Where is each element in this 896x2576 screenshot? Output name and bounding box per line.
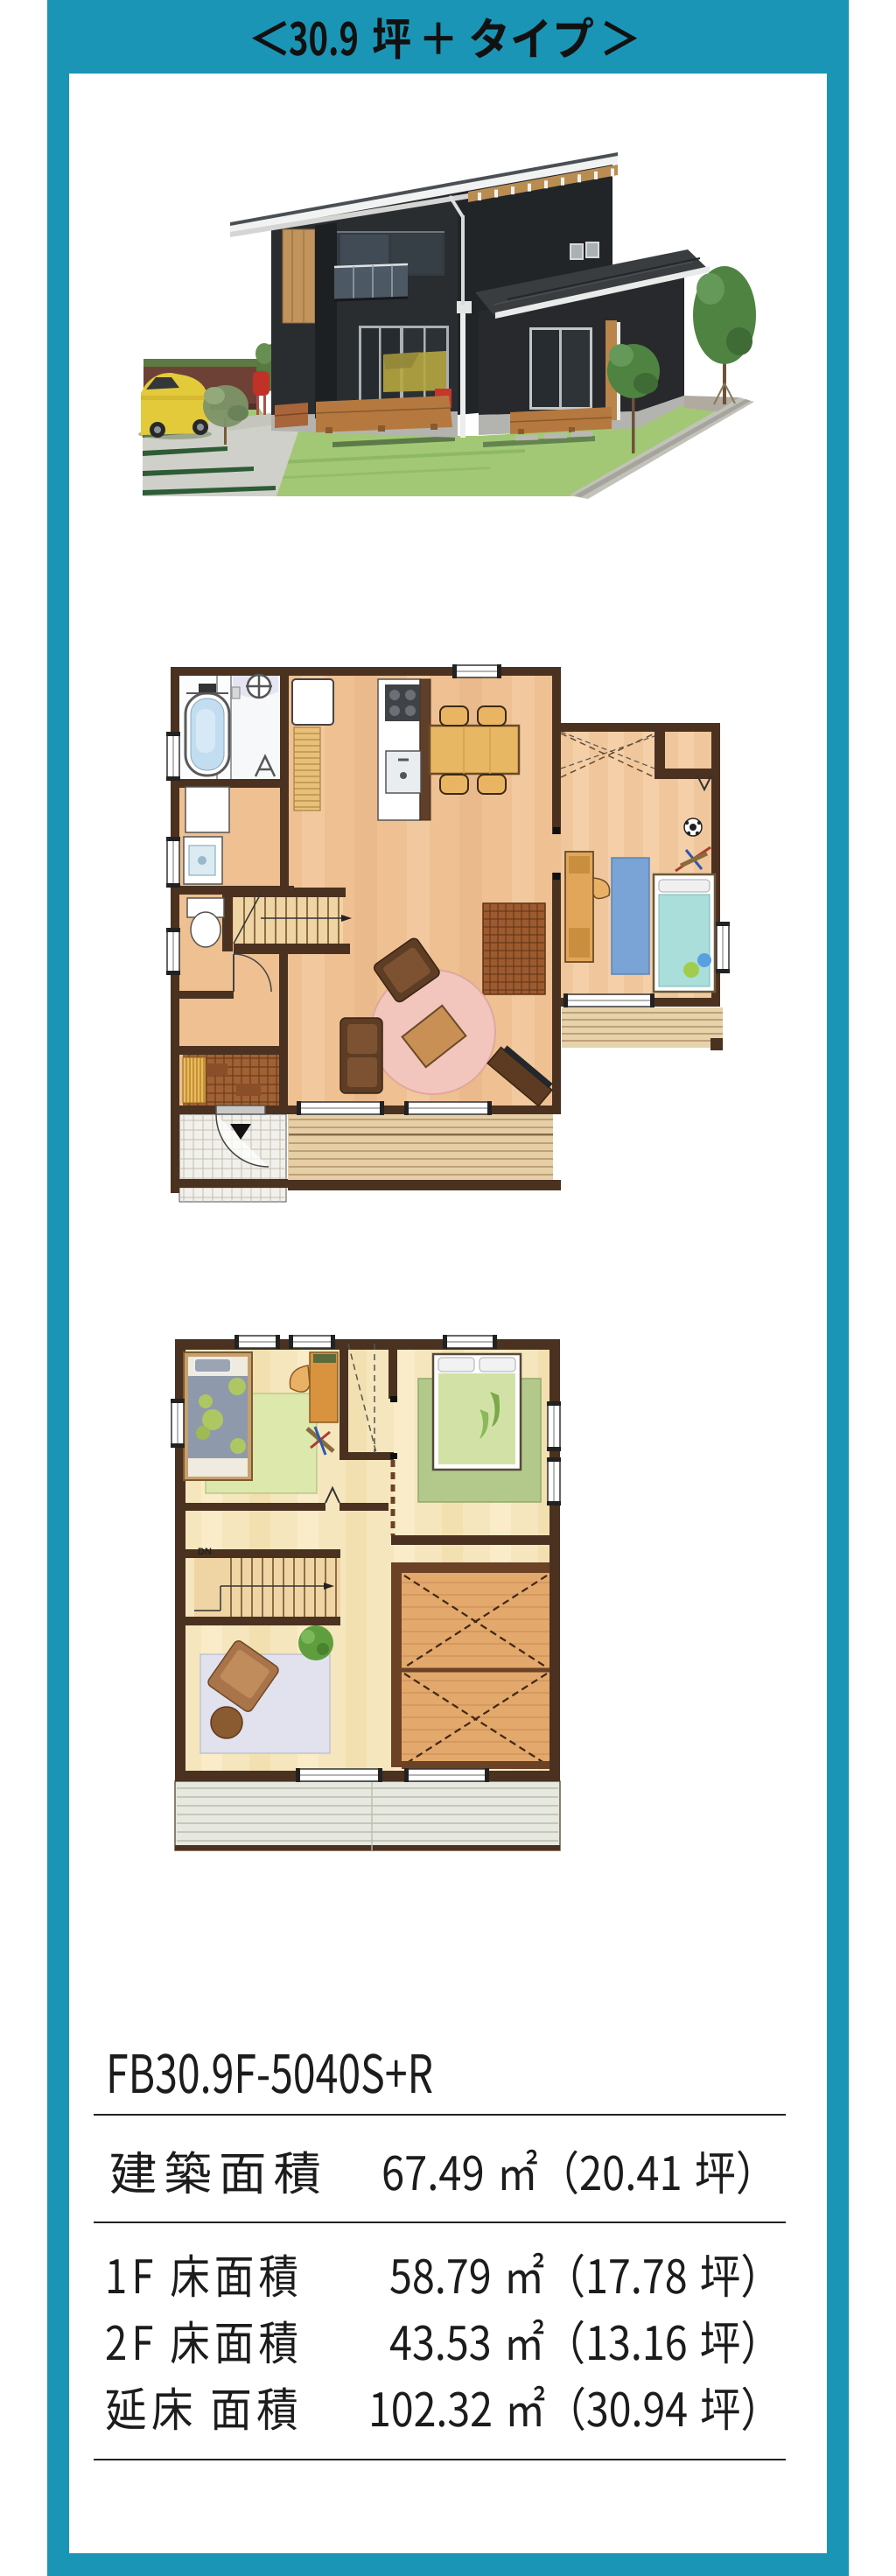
svg-text:DN: DN [198, 1547, 212, 1557]
